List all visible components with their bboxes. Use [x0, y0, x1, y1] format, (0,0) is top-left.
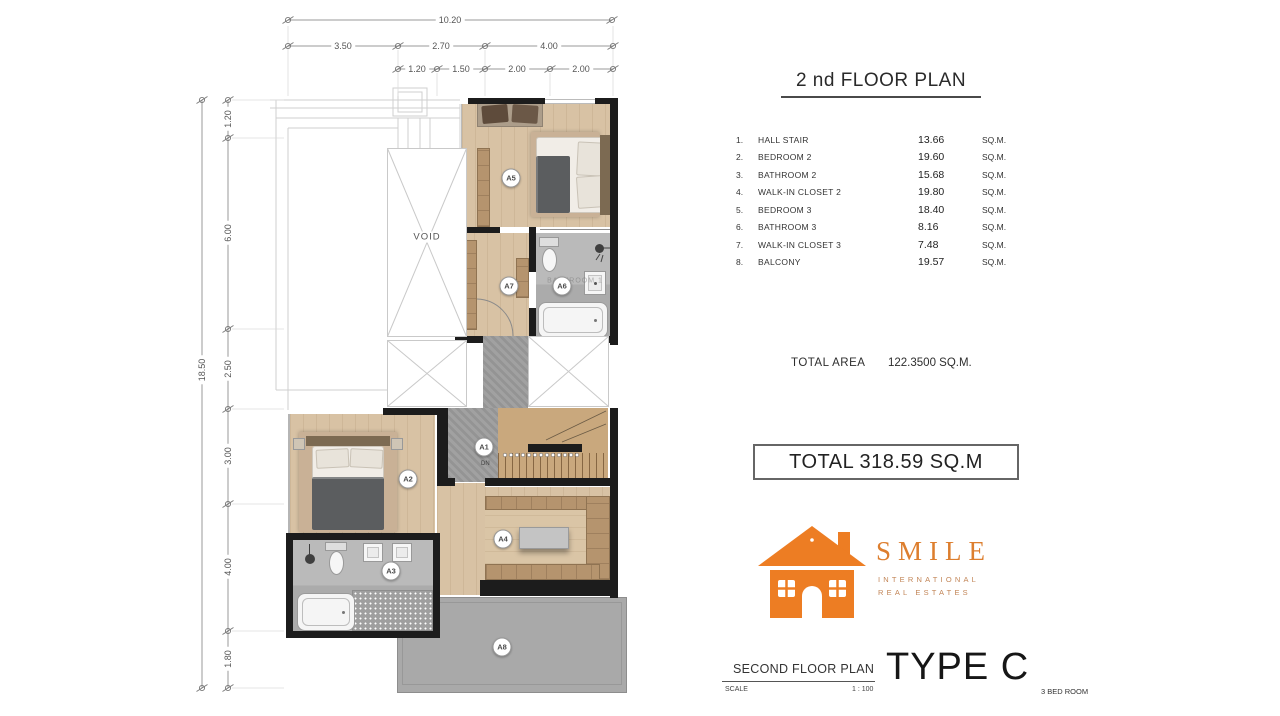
bedroom3-pillow-right	[350, 448, 384, 469]
passage-floor	[437, 483, 485, 595]
wall-right-lower	[610, 408, 618, 598]
table-row: 2. BEDROOM 2 19.60 SQ.M.	[736, 149, 1046, 167]
row-no: 8.	[736, 257, 758, 267]
room-label-a6: A6	[553, 277, 572, 296]
wall-a7a6-divider	[529, 227, 536, 272]
dim-top-270: 2.70	[429, 41, 453, 51]
table-row: 8. BALCONY 19.57 SQ.M.	[736, 254, 1046, 272]
table-row: 7. WALK-IN CLOSET 3 7.48 SQ.M.	[736, 236, 1046, 254]
page-title-underline	[781, 96, 981, 98]
room-label-a7: A7	[500, 277, 519, 296]
wall-a6-top-line	[540, 229, 610, 230]
window-a5-top	[545, 99, 595, 104]
house-window-left	[778, 580, 795, 597]
hall-corridor-upper	[483, 336, 528, 410]
row-name: BEDROOM 3	[758, 205, 918, 215]
sink-left-basin	[367, 547, 379, 558]
row-no: 2.	[736, 152, 758, 162]
bathroom3-bathtub	[297, 593, 355, 631]
room-label-a4: A4	[494, 530, 513, 549]
dim-top-350: 3.50	[331, 41, 355, 51]
bathroom3-block	[286, 533, 440, 638]
void-label: VOID	[411, 232, 442, 243]
row-no: 4.	[736, 187, 758, 197]
wall-a5-bottom	[455, 227, 500, 233]
row-unit: SQ.M.	[982, 187, 1046, 197]
row-area: 19.80	[918, 186, 982, 198]
dim-left-total: 18.50	[197, 356, 207, 385]
shower-head-icon	[595, 244, 604, 253]
bedroom2-headboard	[600, 135, 610, 215]
row-name: WALK-IN CLOSET 3	[758, 240, 918, 250]
row-unit: SQ.M.	[982, 257, 1046, 267]
shower-set-icon	[305, 554, 315, 564]
row-area: 19.60	[918, 151, 982, 163]
stair-down-note: DN	[481, 461, 490, 467]
room-label-a8: A8	[493, 638, 512, 657]
row-no: 5.	[736, 205, 758, 215]
room-label-a5: A5	[502, 169, 521, 188]
bedroom3-headboard	[306, 436, 390, 446]
closet3-bench	[519, 527, 569, 549]
row-name: BATHROOM 3	[758, 222, 918, 232]
dim-top-200a: 2.00	[505, 64, 529, 74]
wall-right-upper	[610, 98, 618, 345]
titleblock-scale-label: SCALE	[725, 686, 748, 693]
room-label-a3: A3	[382, 562, 401, 581]
grand-total-box: TOTAL 318.59 SQ.M	[753, 444, 1019, 480]
bedroom2-blanket	[536, 156, 570, 213]
bedroom2-wardrobe	[477, 148, 490, 227]
room-area-table: 1. HALL STAIR 13.66 SQ.M. 2. BEDROOM 2 1…	[736, 131, 1046, 271]
smile-house-icon	[756, 524, 868, 618]
nightstand-right	[391, 438, 403, 450]
dim-left-600: 6.00	[223, 221, 233, 245]
sofa-pillow-left	[481, 104, 508, 124]
dim-top-150: 1.50	[449, 64, 473, 74]
closet2-cabinet-right	[516, 258, 529, 298]
nightstand-left	[293, 438, 305, 450]
wall-a4-bottom	[480, 580, 610, 596]
table-row: 1. HALL STAIR 13.66 SQ.M.	[736, 131, 1046, 149]
wall-a7a6-divider-stub	[529, 308, 536, 336]
house-door	[802, 586, 822, 618]
sink-right-basin	[396, 547, 408, 558]
bathroom2-bathtub	[538, 302, 608, 338]
toilet3-tank	[325, 542, 347, 551]
row-area: 18.40	[918, 204, 982, 216]
row-no: 3.	[736, 170, 758, 180]
page: 10.20 3.50 2.70 4.00 1.20 1.50 2.00 2.00…	[0, 0, 1280, 716]
dim-left-300: 3.00	[223, 444, 233, 468]
row-area: 15.68	[918, 169, 982, 181]
row-unit: SQ.M.	[982, 222, 1046, 232]
bedroom3-blanket	[312, 477, 384, 530]
wall-a2-right	[437, 408, 448, 485]
row-name: BEDROOM 2	[758, 152, 918, 162]
page-title: 2 nd FLOOR PLAN	[760, 70, 1002, 92]
roof-outline-lines	[270, 88, 460, 410]
row-name: BATHROOM 2	[758, 170, 918, 180]
table-row: 5. BEDROOM 3 18.40 SQ.M.	[736, 201, 1046, 219]
row-name: WALK-IN CLOSET 2	[758, 187, 918, 197]
wall-a6-bottom	[528, 336, 610, 343]
bathroom3-sink-right	[392, 543, 412, 562]
toilet3-bowl	[329, 551, 344, 575]
dim-top-total: 10.20	[436, 15, 465, 25]
closet3-cabinet-bottom	[485, 564, 600, 580]
toilet2-bowl	[542, 248, 557, 272]
bathroom3-sink-left	[363, 543, 383, 562]
stair-railing-balusters	[502, 452, 580, 458]
row-area: 8.16	[918, 221, 982, 233]
row-no: 7.	[736, 240, 758, 250]
total-area-label: TOTAL AREA	[791, 357, 865, 369]
wall-a5-top-left	[468, 98, 545, 104]
row-name: BALCONY	[758, 257, 918, 267]
dim-top-400: 4.00	[537, 41, 561, 51]
row-unit: SQ.M.	[982, 152, 1046, 162]
row-area: 19.57	[918, 256, 982, 268]
wall-hall-bottom-left	[437, 478, 455, 486]
room-label-a1: A1	[475, 438, 494, 457]
roof-dot	[810, 538, 814, 542]
dim-left-250: 2.50	[223, 357, 233, 381]
room-label-a2: A2	[399, 470, 418, 489]
bathroom3-mosaic-floor	[352, 590, 433, 631]
brand-sub1: INTERNATIONAL	[878, 575, 979, 584]
brand-sub2: REAL ESTATES	[878, 588, 971, 597]
titleblock-rule	[722, 681, 875, 682]
titleblock-plan-name: SECOND FLOOR PLAN	[733, 662, 874, 676]
row-unit: SQ.M.	[982, 170, 1046, 180]
bathtub3-drain-dot	[342, 611, 345, 614]
bathtub-drain-dot	[594, 319, 597, 322]
stair-divider-wall	[528, 444, 582, 452]
row-unit: SQ.M.	[982, 205, 1046, 215]
brand-name: SMILE	[876, 536, 992, 567]
shower-hose-line	[309, 544, 310, 555]
row-unit: SQ.M.	[982, 240, 1046, 250]
row-no: 6.	[736, 222, 758, 232]
titleblock-type-sub: 3 BED ROOM	[1041, 687, 1088, 696]
wall-a7-left	[455, 227, 461, 343]
row-no: 1.	[736, 135, 758, 145]
row-area: 13.66	[918, 134, 982, 146]
wall-a7-bottom	[455, 336, 483, 343]
row-unit: SQ.M.	[982, 135, 1046, 145]
dim-top-120: 1.20	[405, 64, 429, 74]
house-window-right	[829, 580, 846, 597]
table-row: 3. BATHROOM 2 15.68 SQ.M.	[736, 166, 1046, 184]
closet2-cabinet-left	[463, 240, 477, 330]
table-row: 6. BATHROOM 3 8.16 SQ.M.	[736, 219, 1046, 237]
row-name: HALL STAIR	[758, 135, 918, 145]
table-row: 4. WALK-IN CLOSET 2 19.80 SQ.M.	[736, 184, 1046, 202]
dim-left-120: 1.20	[223, 107, 233, 131]
dim-top-200b: 2.00	[569, 64, 593, 74]
wall-hall-bottom-right	[485, 478, 610, 486]
dim-left-180: 1.80	[223, 647, 233, 671]
total-area-value: 122.3500 SQ.M.	[888, 357, 972, 369]
row-area: 7.48	[918, 239, 982, 251]
toilet2-tank	[539, 237, 559, 247]
titleblock-scale-value: 1 : 100	[852, 686, 873, 693]
sofa-pillow-right	[511, 104, 538, 124]
bedroom3-pillow-left	[316, 448, 350, 469]
titleblock-type-name: TYPE C	[886, 646, 1029, 689]
closet3-cabinet-top	[485, 496, 600, 510]
dim-left-400: 4.00	[223, 555, 233, 579]
